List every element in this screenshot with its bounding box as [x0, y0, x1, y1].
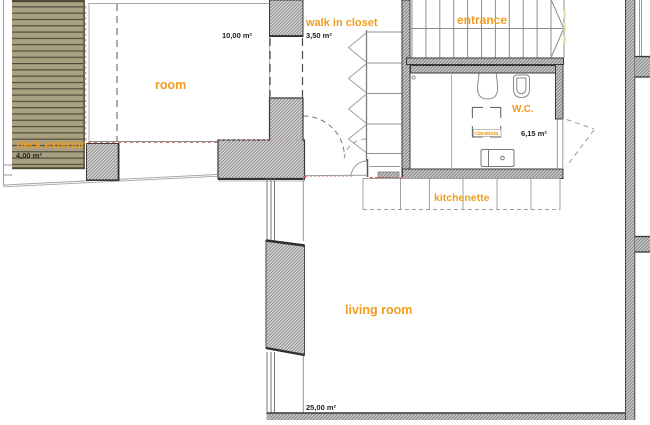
- svg-text:10,00 m²: 10,00 m²: [222, 31, 253, 40]
- svg-text:room: room: [155, 78, 186, 92]
- svg-text:claraboia: claraboia: [475, 131, 500, 137]
- svg-text:W.C.: W.C.: [512, 104, 534, 115]
- svg-text:6,15 m²: 6,15 m²: [521, 129, 547, 138]
- svg-text:entrance: entrance: [457, 13, 507, 27]
- svg-text:4,00 m²: 4,00 m²: [16, 151, 42, 160]
- svg-text:living room: living room: [345, 303, 412, 317]
- svg-text:deck exterior: deck exterior: [17, 139, 86, 151]
- svg-text:kitchenette: kitchenette: [434, 192, 490, 204]
- svg-text:25,00 m²: 25,00 m²: [306, 403, 337, 412]
- svg-text:walk in closet: walk in closet: [305, 17, 378, 29]
- svg-text:3,50 m²: 3,50 m²: [306, 31, 332, 40]
